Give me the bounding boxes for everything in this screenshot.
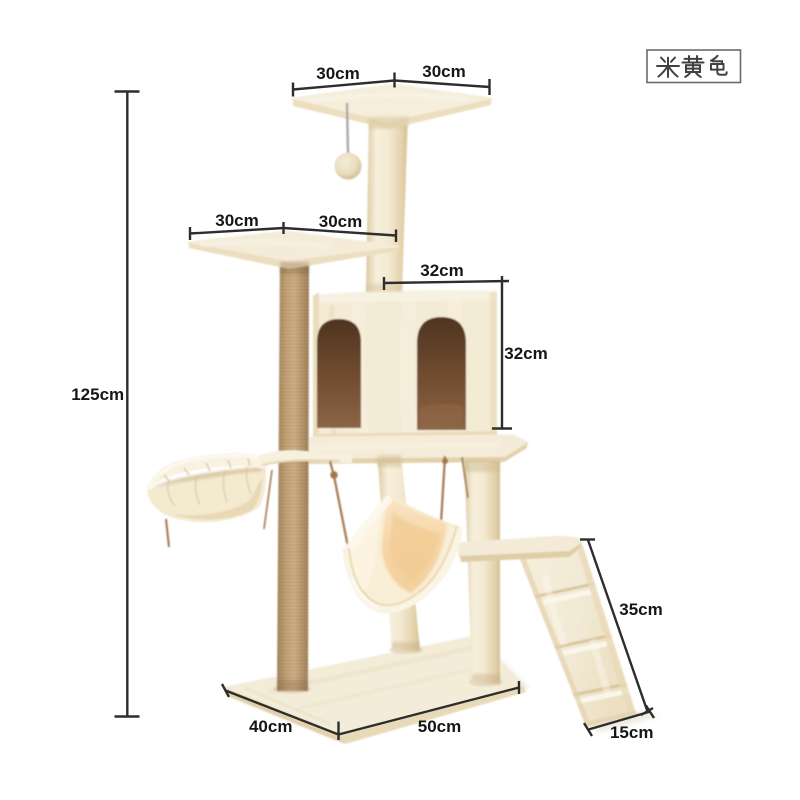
svg-text:50cm: 50cm [418,717,461,736]
svg-text:30cm: 30cm [215,211,258,230]
svg-text:125cm: 125cm [71,385,124,404]
svg-text:15cm: 15cm [610,723,653,742]
svg-text:32cm: 32cm [504,344,547,363]
svg-text:30cm: 30cm [316,64,359,83]
svg-text:32cm: 32cm [420,261,463,280]
svg-text:30cm: 30cm [319,212,362,231]
svg-text:40cm: 40cm [249,717,292,736]
svg-text:30cm: 30cm [422,62,465,81]
svg-text:35cm: 35cm [619,600,662,619]
